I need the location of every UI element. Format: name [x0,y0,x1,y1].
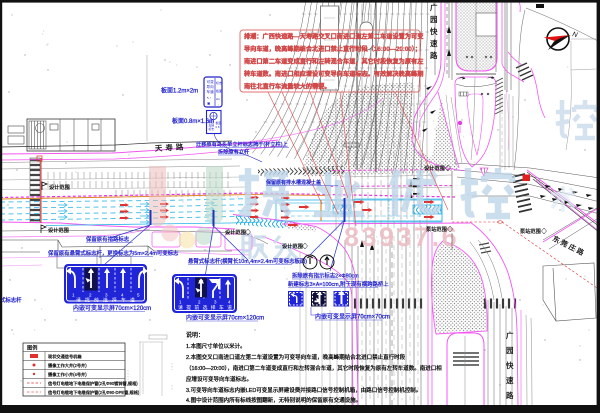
svg-text:5: 5 [137,293,140,298]
svg-text:▣: ▣ [207,102,211,106]
svg-text:（16:00—20:00），南进口第二车道变成直行和左转混合: （16:00—20:00），南进口第二车道变成直行和左转混合车道，其它时段恢复为… [186,364,442,372]
svg-text:迁移原有岛头单立杆标志牌于(杆立柱)上: 迁移原有岛头单立杆标志牌于(杆立柱)上 [196,140,288,148]
svg-text:天寿路: 天寿路 [155,141,187,153]
svg-text:1.本图尺寸单位以米计。: 1.本图尺寸单位以米计。 [186,342,246,350]
svg-text:0.8: 0.8 [216,125,220,129]
svg-text:标志: 标志 [209,127,215,131]
svg-text:拆除原有指示标志2×Φ80cm: 拆除原有指示标志2×Φ80cm [292,272,359,280]
svg-text:3.可变导向车道标志内嵌LED可变显示屏建设费并接路口信号控: 3.可变导向车道标志内嵌LED可变显示屏建设费并接路口信号控制机箱，由路口信号控… [186,386,421,394]
svg-text:2: 2 [89,293,92,298]
svg-text:可变: 可变 [207,79,215,84]
svg-text:摄像工作小井(4号井): 摄像工作小井(4号井) [48,371,87,378]
svg-text:园: 园 [430,15,438,24]
svg-text:板面: 板面 [216,88,222,93]
svg-text:设计范围: 设计范围 [48,226,69,234]
svg-text:快: 快 [430,26,438,36]
svg-text:导向: 导向 [207,84,215,89]
svg-text:板面0.8m×1.6m: 板面0.8m×1.6m [172,117,214,125]
svg-text:1: 1 [72,293,75,298]
svg-text:2.本图交叉口南进口道左第二车道设置为可变导向车道，晚高峰期: 2.本图交叉口南进口道左第二车道设置为可变导向车道，晚高峰期结合北进口禁止直行时… [186,353,406,361]
svg-text:转车道数。南进口相应增设可变导向车道标志。有效解决晚高峰期: 转车道数。南进口相应增设可变导向车道标志。有效解决晚高峰期 [244,70,423,78]
svg-text:悬臂式标志杆(横臂长10m,4m×2.4m可变标志板面): 悬臂式标志杆(横臂长10m,4m×2.4m可变标志板面) [188,257,307,265]
svg-text:4: 4 [121,293,124,298]
svg-text:⇖↑: ⇖↑ [207,96,212,100]
svg-text:园: 园 [506,346,514,355]
svg-text:内嵌可变显示屏70cm×120cm: 内嵌可变显示屏70cm×120cm [73,304,151,312]
svg-text:设计范围: 设计范围 [282,242,303,250]
svg-text:摄像工作大井(2号井): 摄像工作大井(2号井) [48,362,87,369]
svg-text:广: 广 [430,2,438,12]
svg-text:保留原有指路标志: 保留原有指路标志 [86,235,130,243]
svg-text:保留原有排水槽混凝土盖: 保留原有排水槽混凝土盖 [266,179,321,186]
svg-text:泵站范围: 泵站范围 [426,225,447,233]
svg-text:请提前选择车道: 请提前选择车道 [76,297,139,304]
svg-text:板面1.2m×2m: 板面1.2m×2m [161,87,198,95]
svg-text:信号灯电缆地下电缆保护管(2孔Φ90镀锌管,规格): 信号灯电缆地下电缆保护管(2孔Φ90镀锌管,规格) [48,380,138,387]
svg-text:内嵌可变显示屏70cm×70cm: 内嵌可变显示屏70cm×70cm [315,313,390,321]
svg-text:路: 路 [506,390,514,400]
svg-text:车道: 车道 [207,89,215,94]
svg-text:路: 路 [430,50,438,60]
svg-text:排潮：广西快速路—天寿路交叉口南进口道左第二车道设置为可变: 排潮：广西快速路—天寿路交叉口南进口道左第二车道设置为可变 [244,33,424,41]
svg-text:现状交通信号机箱: 现状交通信号机箱 [48,353,82,360]
svg-text:设计范围: 设计范围 [49,183,70,191]
svg-text:导向车道，晚高峰期结合北进口禁止直行时段（16:00—20:: 导向车道，晚高峰期结合北进口禁止直行时段（16:00—20:00）； [244,45,421,53]
svg-text:图例: 图例 [27,344,37,352]
svg-text:南进口第二车道变成直行和左转混合车道，其它时段恢复为原有左: 南进口第二车道变成直行和左转混合车道，其它时段恢复为原有左 [244,58,424,66]
svg-text:2m: 2m [216,97,221,101]
svg-text:泵站范围: 泵站范围 [520,227,541,235]
svg-text:标志: 标志 [216,80,222,85]
svg-text:新建标志3×A=100cm,附于现有横跨路桥上: 新建标志3×A=100cm,附于现有横跨路桥上 [288,280,389,288]
svg-text:应增设可变导向车道标志。: 应增设可变导向车道标志。 [186,375,252,383]
svg-text:说明：: 说明： [186,331,204,339]
svg-text:设计范围: 设计范围 [424,164,445,172]
svg-text:速: 速 [430,39,438,48]
svg-text:请提前选择车道: 请提前选择车道 [178,304,235,311]
svg-text:快: 快 [506,360,514,370]
svg-text:南往北直行车流量较大的需要。: 南往北直行车流量较大的需要。 [244,83,331,91]
svg-text:广: 广 [506,330,514,340]
svg-text:信号灯电缆地下电缆保护管(2孔Φ90-DPE管,规格): 信号灯电缆地下电缆保护管(2孔Φ90-DPE管,规格) [48,389,140,396]
svg-text:式标志杆: 式标志杆 [0,296,22,304]
svg-text:设计范围: 设计范围 [225,228,246,236]
svg-text:保留原有悬臂式标志杆，更换标志为5m×2.4m可变标志: 保留原有悬臂式标志杆，更换标志为5m×2.4m可变标志 [48,249,179,257]
svg-text:4.图中设计范围内所有标线按图翻新，无特别说明的保留原有交通: 4.图中设计范围内所有标线按图翻新，无特别说明的保留原有交通设施。 [186,396,361,404]
svg-text:内嵌可变显示屏70cm×120cm: 内嵌可变显示屏70cm×120cm [186,314,264,322]
svg-text:速: 速 [506,376,514,385]
svg-text:3: 3 [105,293,108,298]
